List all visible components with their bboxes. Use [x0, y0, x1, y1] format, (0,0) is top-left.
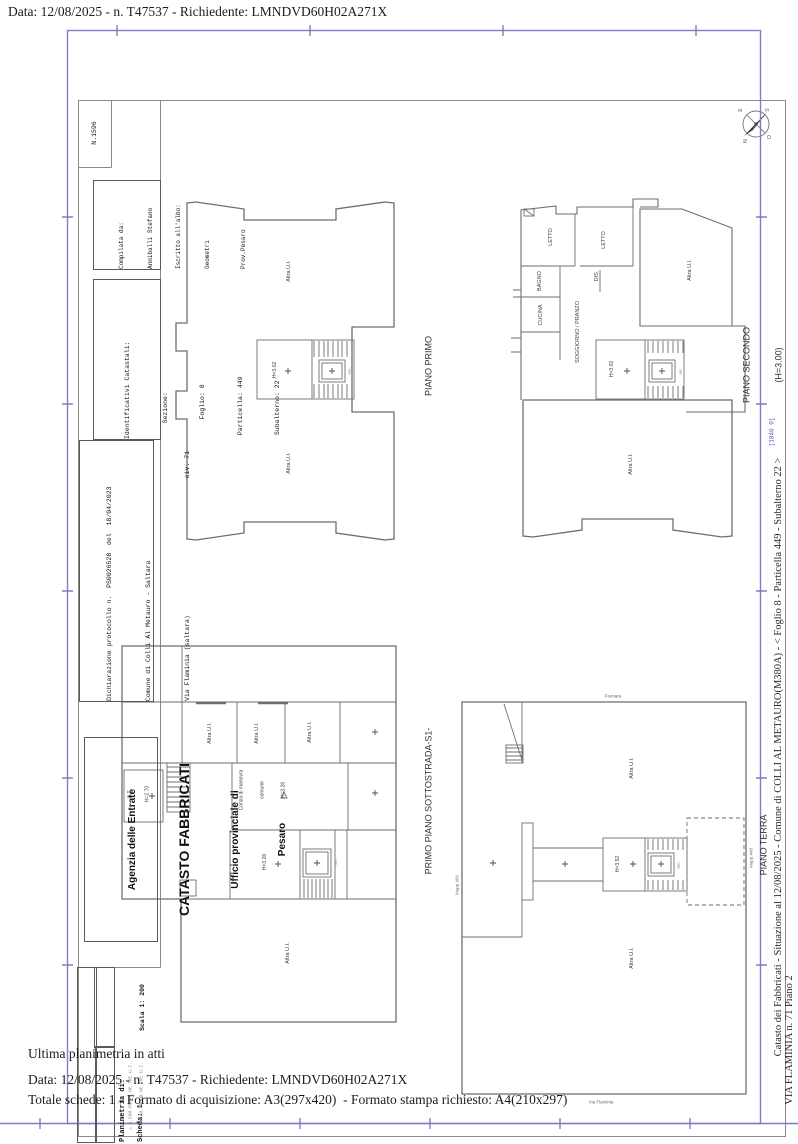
room-label: LETTO — [601, 231, 607, 249]
margin-stamp: [1840 0] — [768, 418, 775, 447]
agenzia-line: Agenzia delle Entrate — [127, 738, 138, 941]
parcel-label: Mapp.448 — [748, 848, 753, 868]
height-label: H=3.52 — [616, 856, 622, 872]
header-request-line: Data: 12/08/2025 - n. T47537 - Richieden… — [8, 4, 387, 20]
room-label: Altra U.I. — [286, 452, 292, 473]
compilata-line: Geometri — [203, 181, 213, 269]
compilata-line: Anniballi Stefano — [146, 181, 156, 269]
elevator-label: asc. — [679, 367, 684, 374]
elevator-label: asc. — [348, 367, 353, 374]
footer-totale-line: Totale schede: 1 - Formato di acquisizio… — [28, 1092, 567, 1108]
plan-title-line: (H=3.00) — [774, 327, 785, 403]
room-label: Altra U.I. — [207, 722, 213, 743]
room-label-line: C.T. — [128, 786, 134, 802]
compass-letter-s: S — [766, 108, 772, 111]
room-label: Altra U.I. — [254, 722, 260, 743]
sheet-number: N.1596 — [91, 121, 99, 144]
identificativi-line: Identificativi Catastali: — [122, 280, 135, 439]
compass-letter-o: O — [768, 135, 774, 139]
room-label: BAGNO — [537, 271, 543, 291]
margin-situazione-line: Catasto dei Fabbricati - Situazione al 1… — [773, 458, 785, 1057]
compass-letter-e: E — [739, 108, 745, 111]
identificativi-line: Sezione: — [160, 280, 173, 439]
compilata-line: Iscritto all'albo: — [174, 181, 184, 269]
room-label-line: H=2.70 — [146, 786, 152, 802]
floor-plan-piano-terra — [462, 702, 746, 1094]
room-label: Altra U.I. — [286, 260, 292, 281]
parcel-label: Mapp.460 — [454, 875, 459, 895]
compass-letter-n: N — [744, 139, 750, 143]
agenzia-line: CATASTO FABBRICATI — [176, 738, 192, 941]
plan-title-line: PIANO SECONDO — [742, 327, 753, 403]
room-label-line: H=3.26 — [281, 770, 288, 811]
margin-address-line: VIA FLAMINIA n. 71 Piano 2 — [784, 975, 796, 1105]
room-label: Altra U.I. — [628, 453, 634, 474]
dichiarazione-via: Via Flaminia (saltara) — [183, 615, 192, 701]
identificativi-line: Foglio: 8 — [197, 280, 210, 439]
height-label: H=3.02 — [273, 362, 279, 378]
street-label: Via Flaminia — [589, 1100, 614, 1105]
plan-title-sottostrada: PRIMO PIANO SOTTOSTRADA-S1- — [424, 728, 435, 875]
footer-data-line: Data: 12/08/2025 - n. T47537 - Richieden… — [28, 1072, 407, 1088]
floor-plan-piano-secondo — [511, 199, 745, 537]
room-label: LETTO — [548, 228, 554, 246]
plan-title-piano-secondo: PIANO SECONDO (H=3.00) — [721, 327, 798, 403]
room-label: SOGGIORNO / PRANZO — [575, 301, 581, 363]
room-label: Altra U.I. — [629, 947, 635, 968]
titleblock-dichiarazione: Dichiarazione protocollo n. PS0026528 de… — [79, 440, 154, 702]
titleblock-compilata: Compilata da: Anniballi Stefano Iscritto… — [93, 180, 161, 270]
elevator-label: asc. — [677, 861, 682, 868]
room-label-line: comune — [260, 770, 267, 811]
room-label: Altra U.I. — [285, 942, 291, 963]
room-label: CUCINA — [538, 304, 544, 325]
room-label: Altra U.I. — [629, 757, 635, 778]
room-label-corsia: Corsia di manovra comune H=3.26 — [225, 770, 302, 811]
plan-title-piano-primo: PIANO PRIMO — [424, 336, 435, 396]
room-label: Altra U.I. — [307, 721, 313, 742]
titleblock-agenzia: Agenzia delle Entrate CATASTO FABBRICATI… — [84, 737, 158, 942]
plan-title-piano-terra: PIANO TERRA — [759, 815, 770, 876]
identificativi-line: Subalterno: 22 — [272, 280, 285, 439]
compass-icon — [743, 111, 769, 137]
height-label: H=3.02 — [610, 361, 616, 377]
elevator-label: asc. — [334, 858, 339, 865]
titleblock-identificativi: Identificativi Catastali: Sezione: Fogli… — [93, 279, 161, 440]
room-label-ct: C.T. H=2.70 — [116, 786, 163, 802]
compilata-line: Compilata da: — [117, 181, 127, 269]
boundary-label: Fiumara — [605, 694, 622, 699]
height-label: H=3.26 — [263, 854, 269, 870]
scanned-cadastral-document: N.1596 Compilata da: Anniballi Stefano I… — [0, 0, 798, 1144]
room-label: DIS. — [594, 271, 600, 282]
dichiarazione-comune: Comune di Colli Al Metauro - Saltara — [144, 441, 153, 701]
dichiarazione-civico: civ. 71 — [183, 451, 192, 478]
dichiarazione-protocollo: Dichiarazione protocollo n. PS0026528 de… — [105, 441, 114, 701]
room-label-line: Corsia di manovra — [239, 770, 246, 811]
compilata-line: Prov.Pesaro — [239, 181, 249, 269]
agenzia-line: Pesaro — [277, 738, 288, 941]
room-label: Altra U.I. — [687, 259, 693, 280]
footer-ultima-line: Ultima planimetria in atti — [28, 1046, 165, 1062]
identificativi-line: Particella: 449 — [235, 280, 248, 439]
